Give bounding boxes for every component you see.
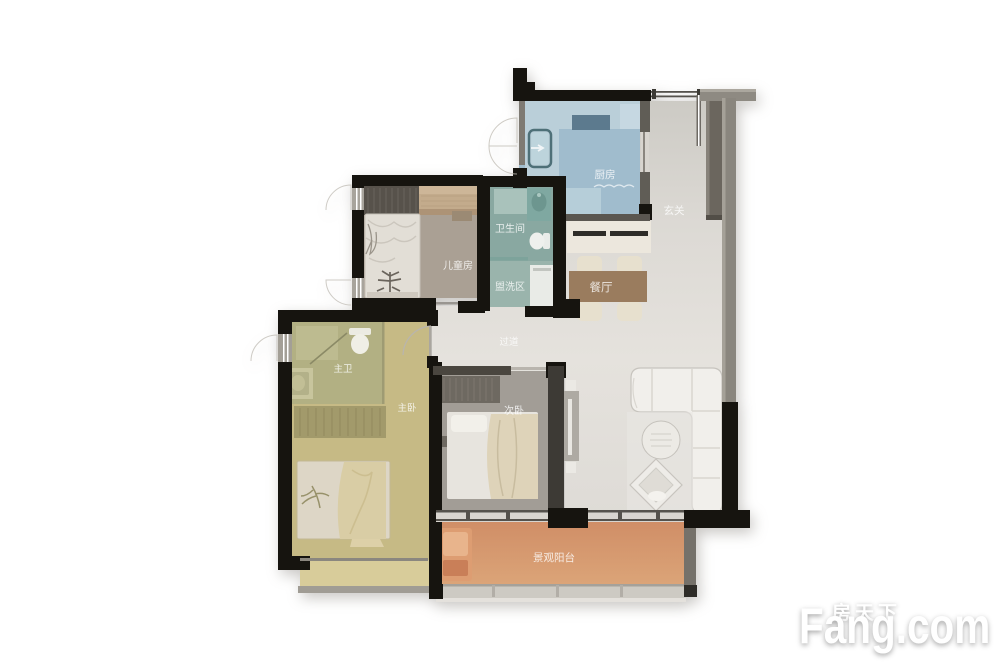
svg-text:景观阳台: 景观阳台 <box>533 551 575 564</box>
svg-text:主卧: 主卧 <box>397 402 417 414</box>
svg-text:过道: 过道 <box>499 336 519 348</box>
svg-text:主卫: 主卫 <box>333 363 353 375</box>
svg-text:餐厅: 餐厅 <box>590 280 613 294</box>
svg-text:次卧: 次卧 <box>504 404 524 417</box>
svg-text:卫生间: 卫生间 <box>495 222 525 235</box>
svg-text:儿童房: 儿童房 <box>443 259 473 272</box>
svg-text:厨房: 厨房 <box>595 168 616 181</box>
svg-text:玄关: 玄关 <box>664 204 685 217</box>
svg-text:盥洗区: 盥洗区 <box>495 281 525 293</box>
